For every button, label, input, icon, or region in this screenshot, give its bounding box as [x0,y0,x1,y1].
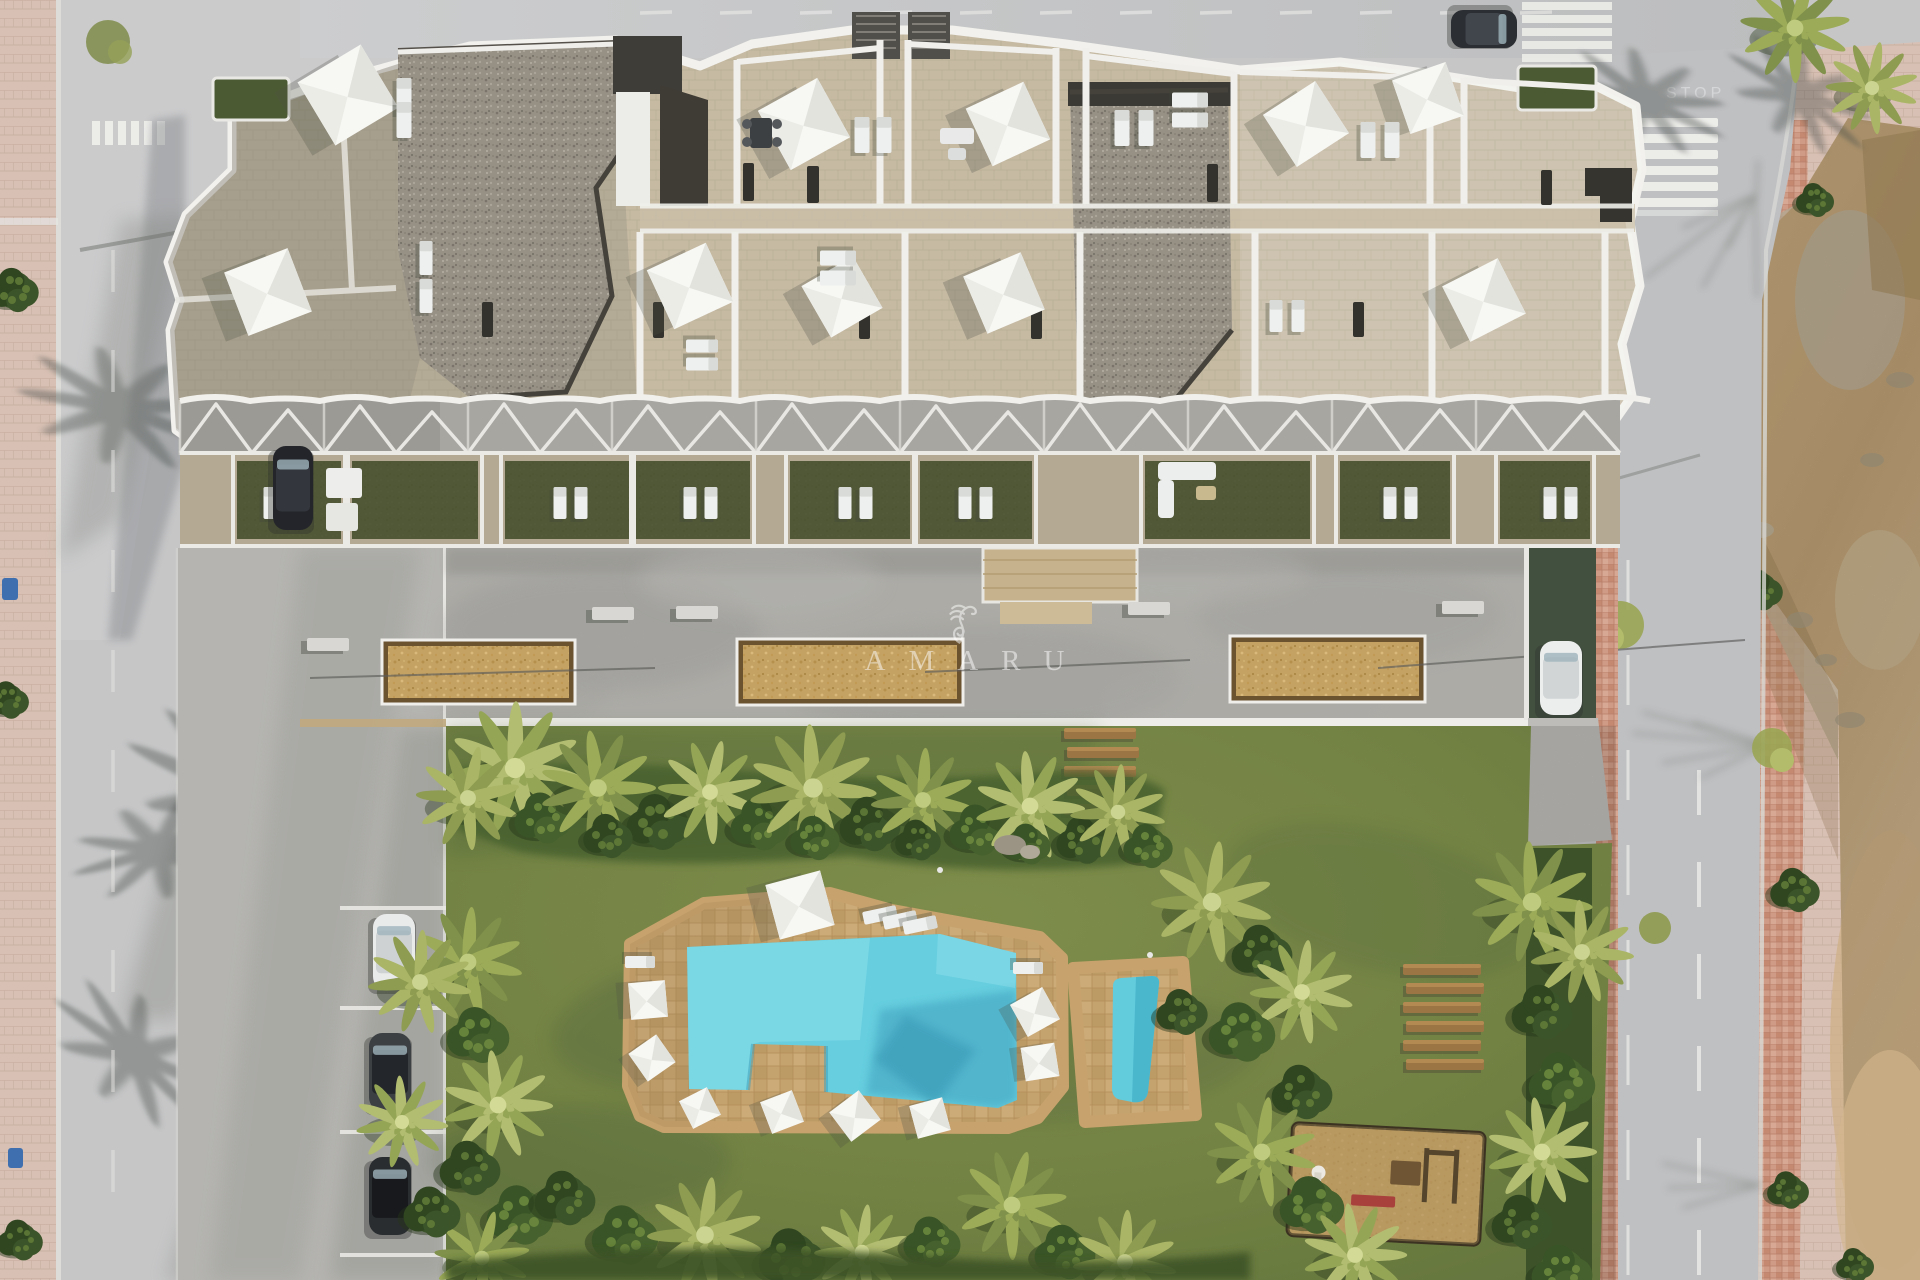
svg-text:AMARU: AMARU [865,645,1088,677]
